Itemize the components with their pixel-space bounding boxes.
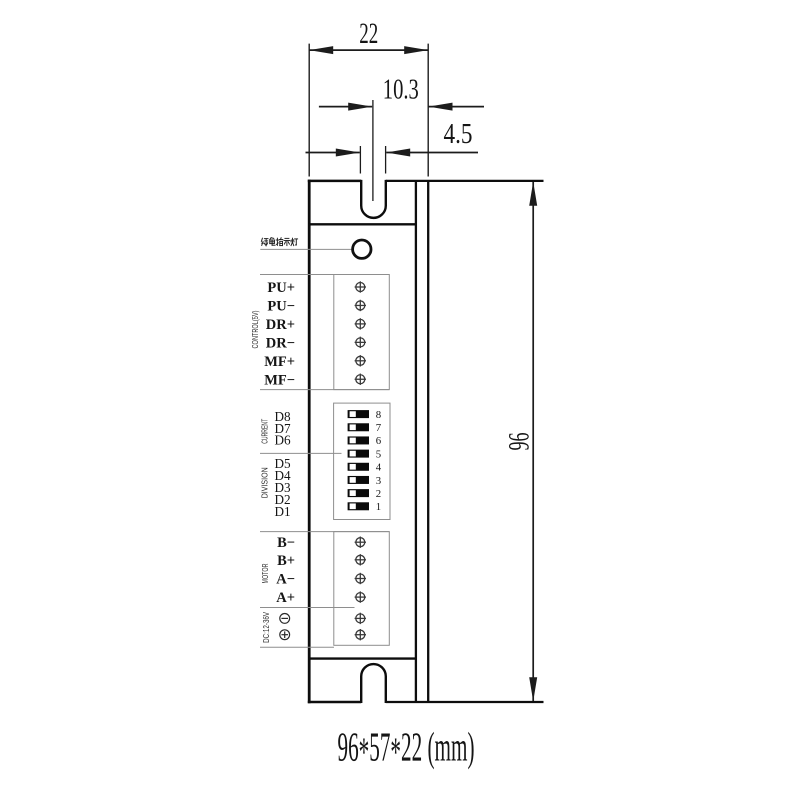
svg-text:D6: D6 <box>274 433 291 448</box>
svg-text:DR−: DR− <box>266 335 295 351</box>
svg-text:3: 3 <box>376 475 381 487</box>
svg-text:6: 6 <box>376 435 382 447</box>
svg-text:B−: B− <box>277 535 295 551</box>
svg-text:D1: D1 <box>274 504 290 519</box>
svg-text:DIVISION: DIVISION <box>261 467 270 498</box>
svg-text:5: 5 <box>376 448 381 460</box>
svg-text:8: 8 <box>376 409 381 421</box>
svg-text:1: 1 <box>376 501 381 513</box>
svg-text:B+: B+ <box>277 553 295 569</box>
svg-text:7: 7 <box>376 422 382 434</box>
svg-text:4: 4 <box>376 462 382 474</box>
svg-text:A+: A+ <box>276 590 295 606</box>
svg-text:MOTOR: MOTOR <box>261 563 270 583</box>
svg-text:10.3: 10.3 <box>383 75 419 106</box>
svg-text:DR+: DR+ <box>266 317 295 333</box>
svg-text:96*57*22 (mm): 96*57*22 (mm) <box>338 724 475 775</box>
svg-text:2: 2 <box>376 488 381 500</box>
svg-text:MF−: MF− <box>264 372 295 388</box>
svg-text:DC:12-36V: DC:12-36V <box>262 611 271 643</box>
svg-text:PU−: PU− <box>267 298 295 314</box>
svg-text:PU+: PU+ <box>267 280 295 296</box>
svg-text:4.5: 4.5 <box>444 119 473 150</box>
svg-text:22: 22 <box>359 17 378 50</box>
svg-text:A−: A− <box>276 572 295 588</box>
svg-text:CURRENT: CURRENT <box>261 419 270 444</box>
svg-text:MF+: MF+ <box>264 354 295 370</box>
svg-text:96: 96 <box>503 433 536 451</box>
svg-text:CONTROL(5V): CONTROL(5V) <box>251 310 260 348</box>
